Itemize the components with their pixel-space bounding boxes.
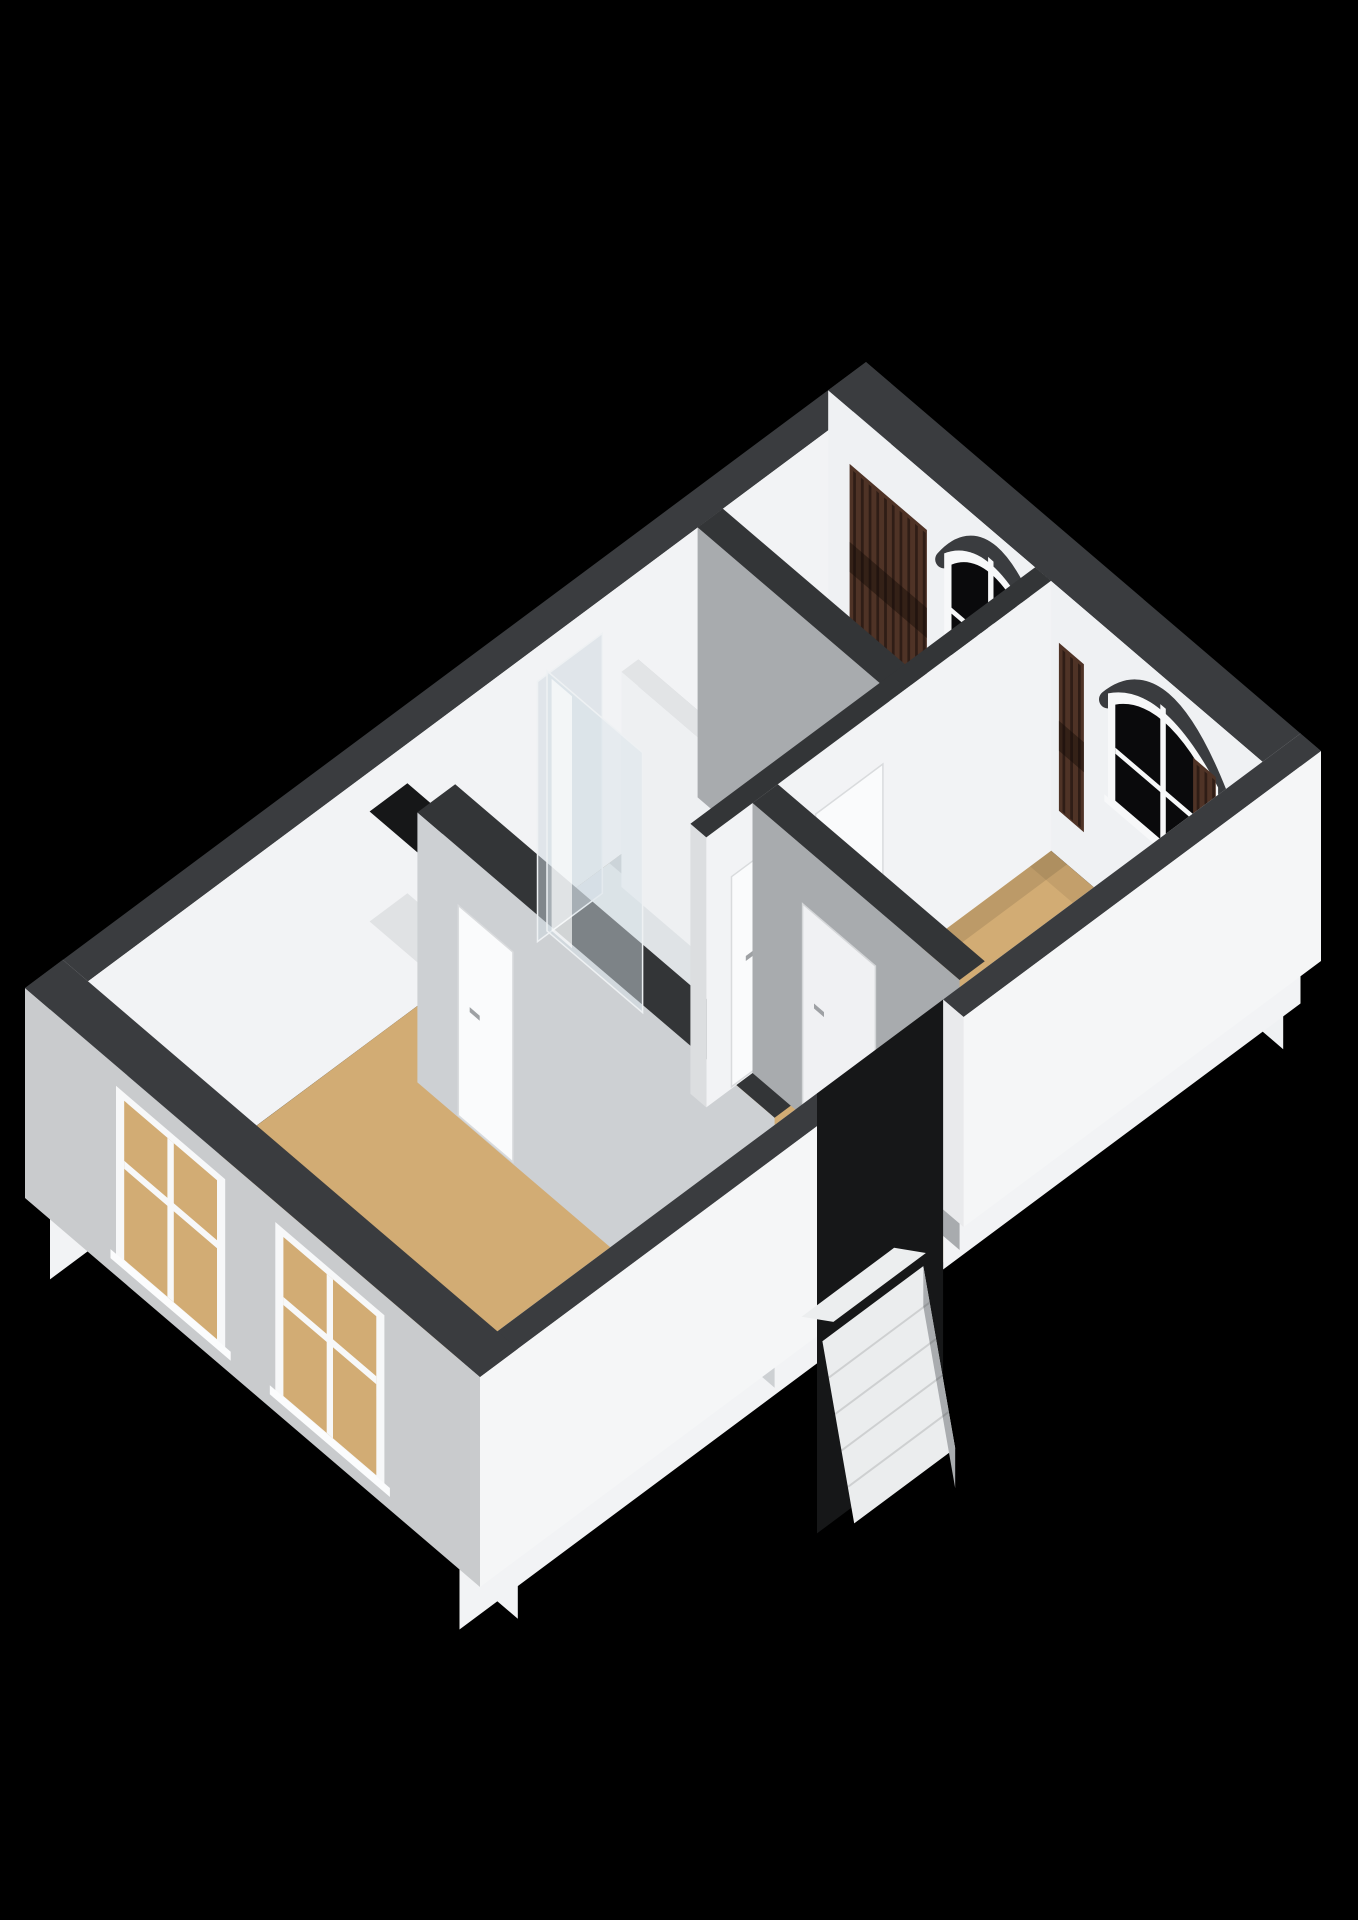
sw-window-2-mullion: [327, 1274, 333, 1439]
floorplan-3d: [0, 0, 1358, 1920]
sw-window-1-mullion: [167, 1138, 173, 1302]
arched-window-2-mullion: [1160, 704, 1166, 844]
shower-glass-specular: [552, 679, 572, 949]
page-background: [0, 0, 1358, 1920]
stair-gap-end-right: [943, 1000, 964, 1228]
center-wall-end-face: [690, 824, 706, 1108]
